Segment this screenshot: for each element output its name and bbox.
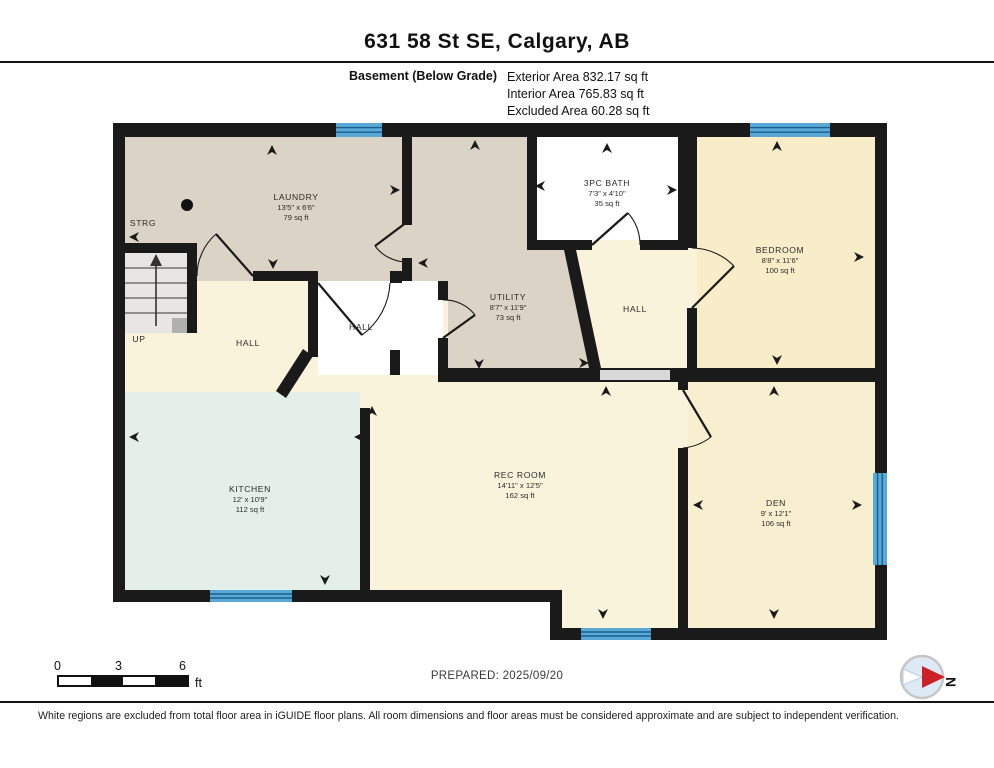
floorplan-drawing: LAUNDRY 13'5" x 6'6" 79 sq ft STRG UP HA… (0, 0, 994, 660)
label-rec-room: REC ROOM (494, 470, 546, 480)
label-kitchen-area: 112 sq ft (236, 505, 265, 514)
room-hall-middle (318, 281, 443, 375)
label-laundry-area: 79 sq ft (284, 213, 310, 222)
floorplan-page: 631 58 St SE, Calgary, AB Basement (Belo… (0, 0, 994, 768)
label-den-dims: 9' x 12'1" (761, 509, 792, 518)
label-bedroom-dims: 8'8" x 11'6" (762, 256, 799, 265)
label-bath: 3PC BATH (584, 178, 630, 188)
compass-north-label: N (943, 677, 959, 687)
window-laundry-top (336, 123, 382, 137)
label-utility-dims: 8'7" x 11'9" (490, 303, 527, 312)
window-den-right (873, 473, 887, 565)
label-rec-room-area: 162 sq ft (505, 491, 535, 500)
laundry-dot (181, 199, 193, 211)
label-hall-left: HALL (236, 338, 260, 348)
label-bath-area: 35 sq ft (595, 199, 621, 208)
label-kitchen-dims: 12' x 10'9" (233, 495, 268, 504)
window-bedroom-top (750, 123, 830, 137)
opening-hall-rec (600, 370, 670, 380)
label-utility: UTILITY (490, 292, 526, 302)
stairs-landing (172, 318, 187, 333)
label-hall-right: HALL (623, 304, 647, 314)
prepared-date: PREPARED: 2025/09/20 (0, 670, 994, 682)
label-bedroom: BEDROOM (756, 245, 805, 255)
window-kitchen-bottom (210, 590, 292, 602)
label-bath-dims: 7'3" x 4'10" (588, 189, 626, 198)
footer-divider (0, 701, 994, 703)
label-hall-middle: HALL (349, 322, 373, 332)
label-rec-room-dims: 14'11" x 12'5" (497, 481, 543, 490)
disclaimer-text: White regions are excluded from total fl… (38, 710, 968, 722)
label-den: DEN (766, 498, 786, 508)
label-laundry: LAUNDRY (273, 192, 318, 202)
label-utility-area: 73 sq ft (496, 313, 522, 322)
window-rec-bottom (581, 628, 651, 640)
label-den-area: 106 sq ft (761, 519, 791, 528)
label-laundry-dims: 13'5" x 6'6" (277, 203, 315, 212)
compass: N (895, 650, 965, 704)
label-bedroom-area: 100 sq ft (765, 266, 795, 275)
label-kitchen: KITCHEN (229, 484, 271, 494)
label-strg: STRG (130, 218, 156, 228)
label-up: UP (132, 334, 145, 344)
